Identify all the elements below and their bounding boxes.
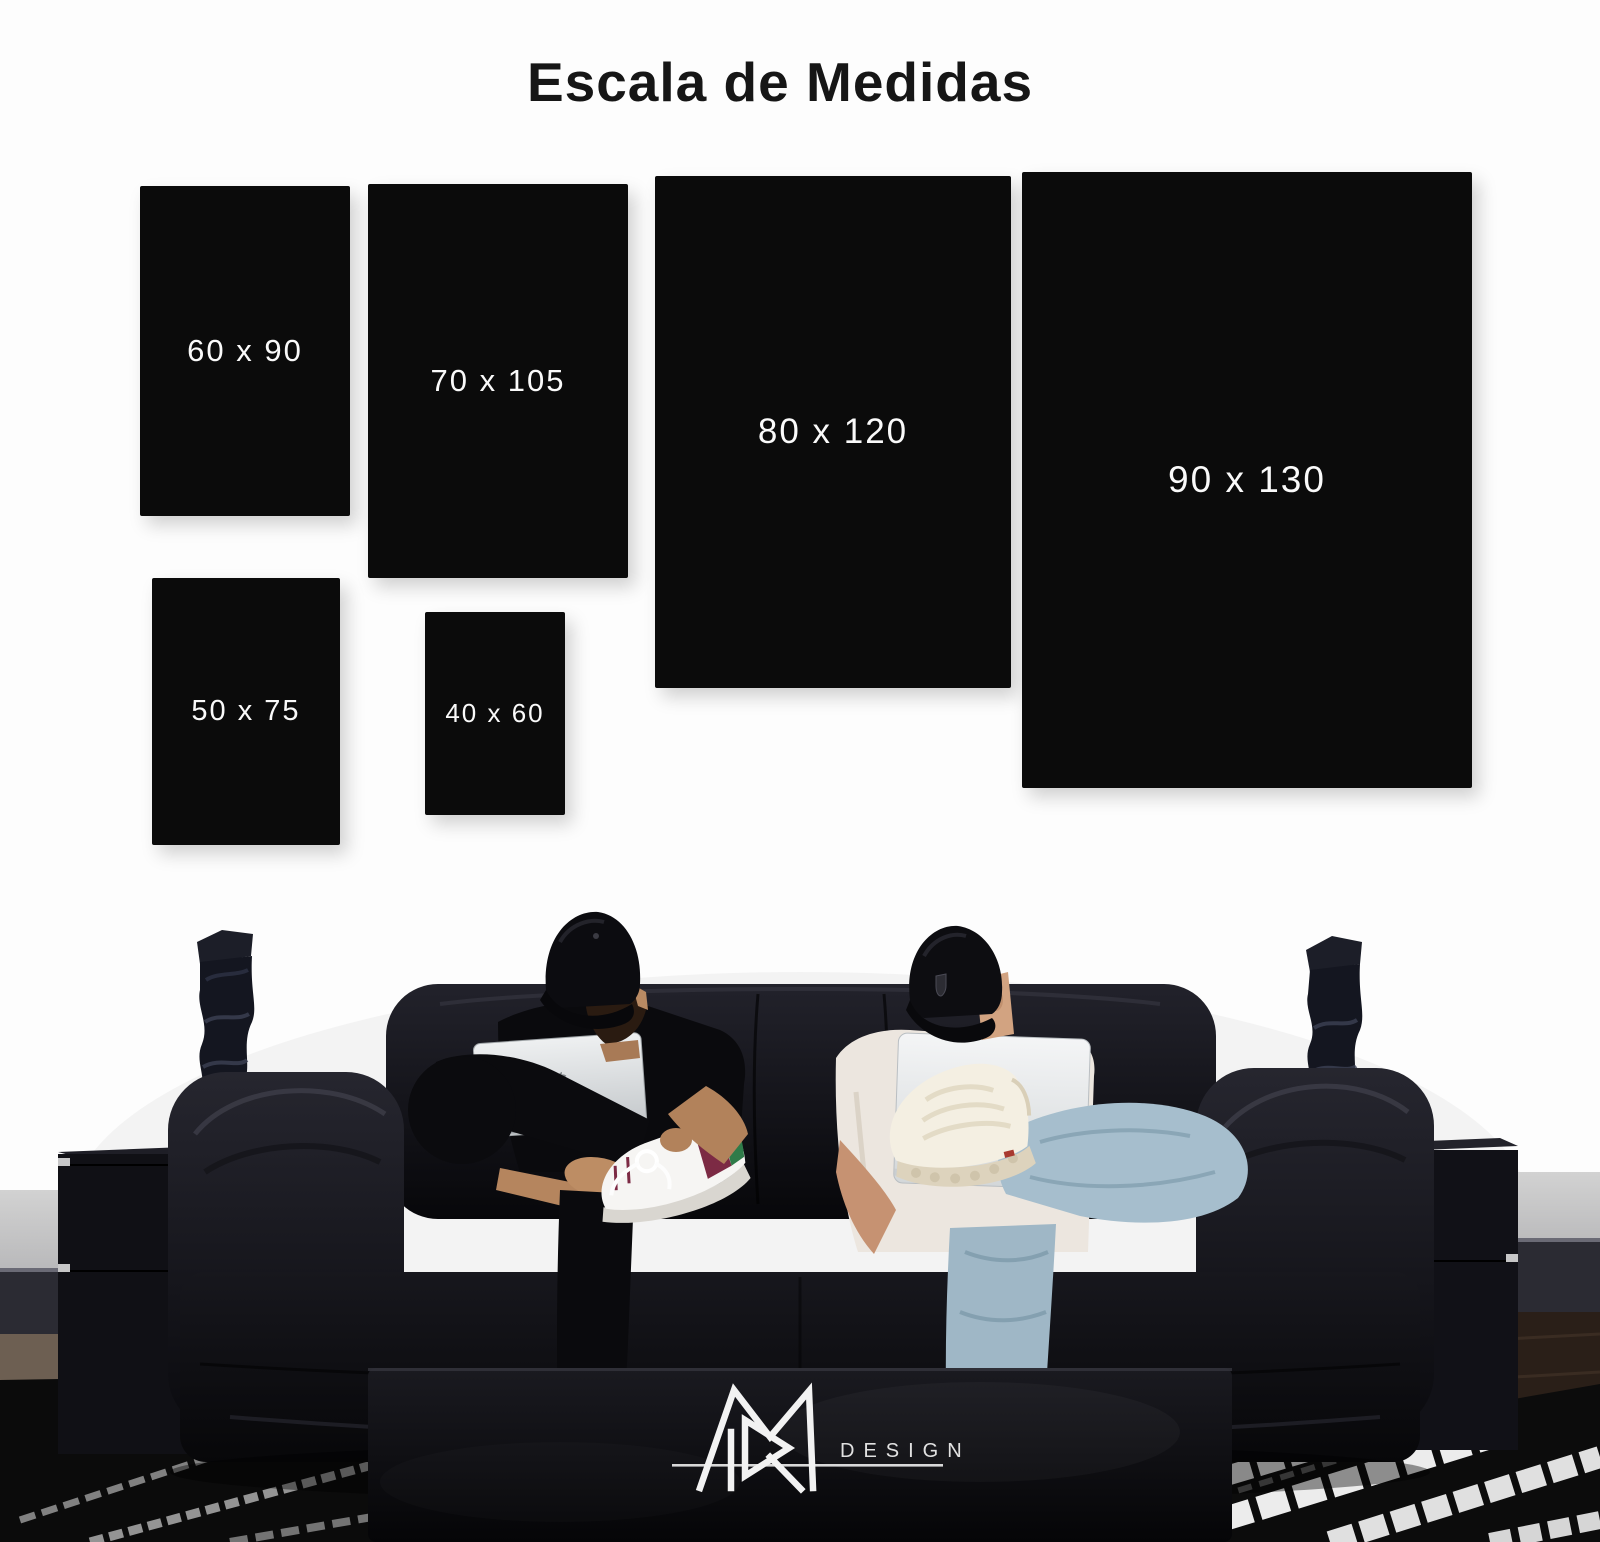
logo-underline	[672, 1464, 943, 1467]
size-panel-90x130: 90 x 130	[1022, 172, 1472, 788]
brand-wordmark: DESIGN	[840, 1440, 971, 1462]
size-panel-80x120: 80 x 120	[655, 176, 1011, 688]
size-label: 70 x 105	[431, 363, 566, 399]
size-label: 40 x 60	[445, 698, 544, 729]
size-label: 50 x 75	[191, 695, 300, 728]
size-guide-page: Escala de Medidas 60 x 90 70 x 105 80 x …	[0, 0, 1600, 1542]
page-title: Escala de Medidas	[0, 50, 1560, 114]
size-label: 60 x 90	[187, 333, 303, 369]
coffee-table	[368, 1368, 1232, 1542]
cap-shield-logo	[936, 974, 946, 996]
size-panel-50x75: 50 x 75	[152, 578, 340, 845]
size-label: 80 x 120	[758, 412, 908, 452]
size-label: 90 x 130	[1168, 459, 1326, 501]
showroom-photo: DESIGN	[0, 872, 1600, 1542]
size-panel-70x105: 70 x 105	[368, 184, 628, 578]
size-panel-60x90: 60 x 90	[140, 186, 350, 516]
size-panel-40x60: 40 x 60	[425, 612, 565, 815]
